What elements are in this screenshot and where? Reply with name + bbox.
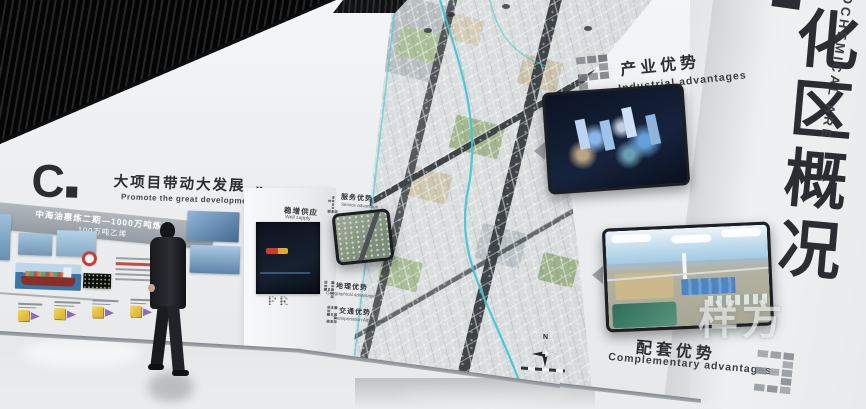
wall-photo xyxy=(18,233,53,256)
ceiling-vent xyxy=(333,0,407,13)
night-plant-photo xyxy=(83,273,112,289)
person-shoe xyxy=(148,364,164,370)
person-leg xyxy=(167,306,185,373)
exhibition-hall-scene: 化区概况 OCHEMICAL ARE N xyxy=(0,0,866,409)
visitor-person xyxy=(140,222,200,382)
step-tank-icon xyxy=(54,308,65,319)
pillar-panel-subtitle: Well supply xyxy=(285,214,311,222)
person-hand xyxy=(148,284,155,292)
ceiling-spotlight xyxy=(447,12,455,17)
process-step xyxy=(18,301,43,322)
section-logo: C xyxy=(31,157,79,205)
wall-screen-left xyxy=(331,208,394,266)
ceiling-spotlight xyxy=(424,28,432,33)
panel-glow-line xyxy=(260,272,310,274)
black-slatted-ceiling xyxy=(0,0,360,150)
pixel-digit-1 xyxy=(328,196,338,213)
ceiling-spotlight xyxy=(502,4,510,9)
process-step xyxy=(54,299,81,320)
wall-screen-top-right xyxy=(542,83,691,195)
pixel-digit-3 xyxy=(754,350,794,394)
wall-photo xyxy=(0,214,11,260)
person-torso xyxy=(150,237,186,309)
recessed-display xyxy=(256,222,320,294)
panel-logo-strip xyxy=(266,248,288,254)
screen-bracket xyxy=(534,142,545,160)
ship-bridge xyxy=(63,267,71,277)
floor-light-pool xyxy=(22,338,142,368)
step-arrow-icon xyxy=(31,312,40,320)
person-leg xyxy=(150,305,169,368)
compass-label: N xyxy=(543,334,548,341)
step-tank-icon xyxy=(18,310,29,321)
watermark-text: 样方 xyxy=(698,288,786,346)
ship-photo xyxy=(15,263,82,291)
cnooc-logo xyxy=(82,251,98,267)
person-floor-reflection xyxy=(148,372,194,402)
step-arrow-icon xyxy=(67,310,76,318)
step-tank-icon xyxy=(92,306,103,317)
process-step xyxy=(92,297,119,318)
screen-bracket xyxy=(592,266,603,284)
dot-matrix-letters: PR xyxy=(268,294,291,310)
compass-icon: N xyxy=(528,332,562,368)
aerial-town-image xyxy=(335,211,392,262)
ceiling-spotlight xyxy=(584,26,592,31)
step-arrow-icon xyxy=(105,308,114,316)
section-logo-letter: C xyxy=(31,154,66,207)
logo-square-dot xyxy=(66,186,77,197)
night-city-render-image xyxy=(545,86,687,191)
pillar-wall: 稳增供应 Well supply PR xyxy=(244,188,336,350)
